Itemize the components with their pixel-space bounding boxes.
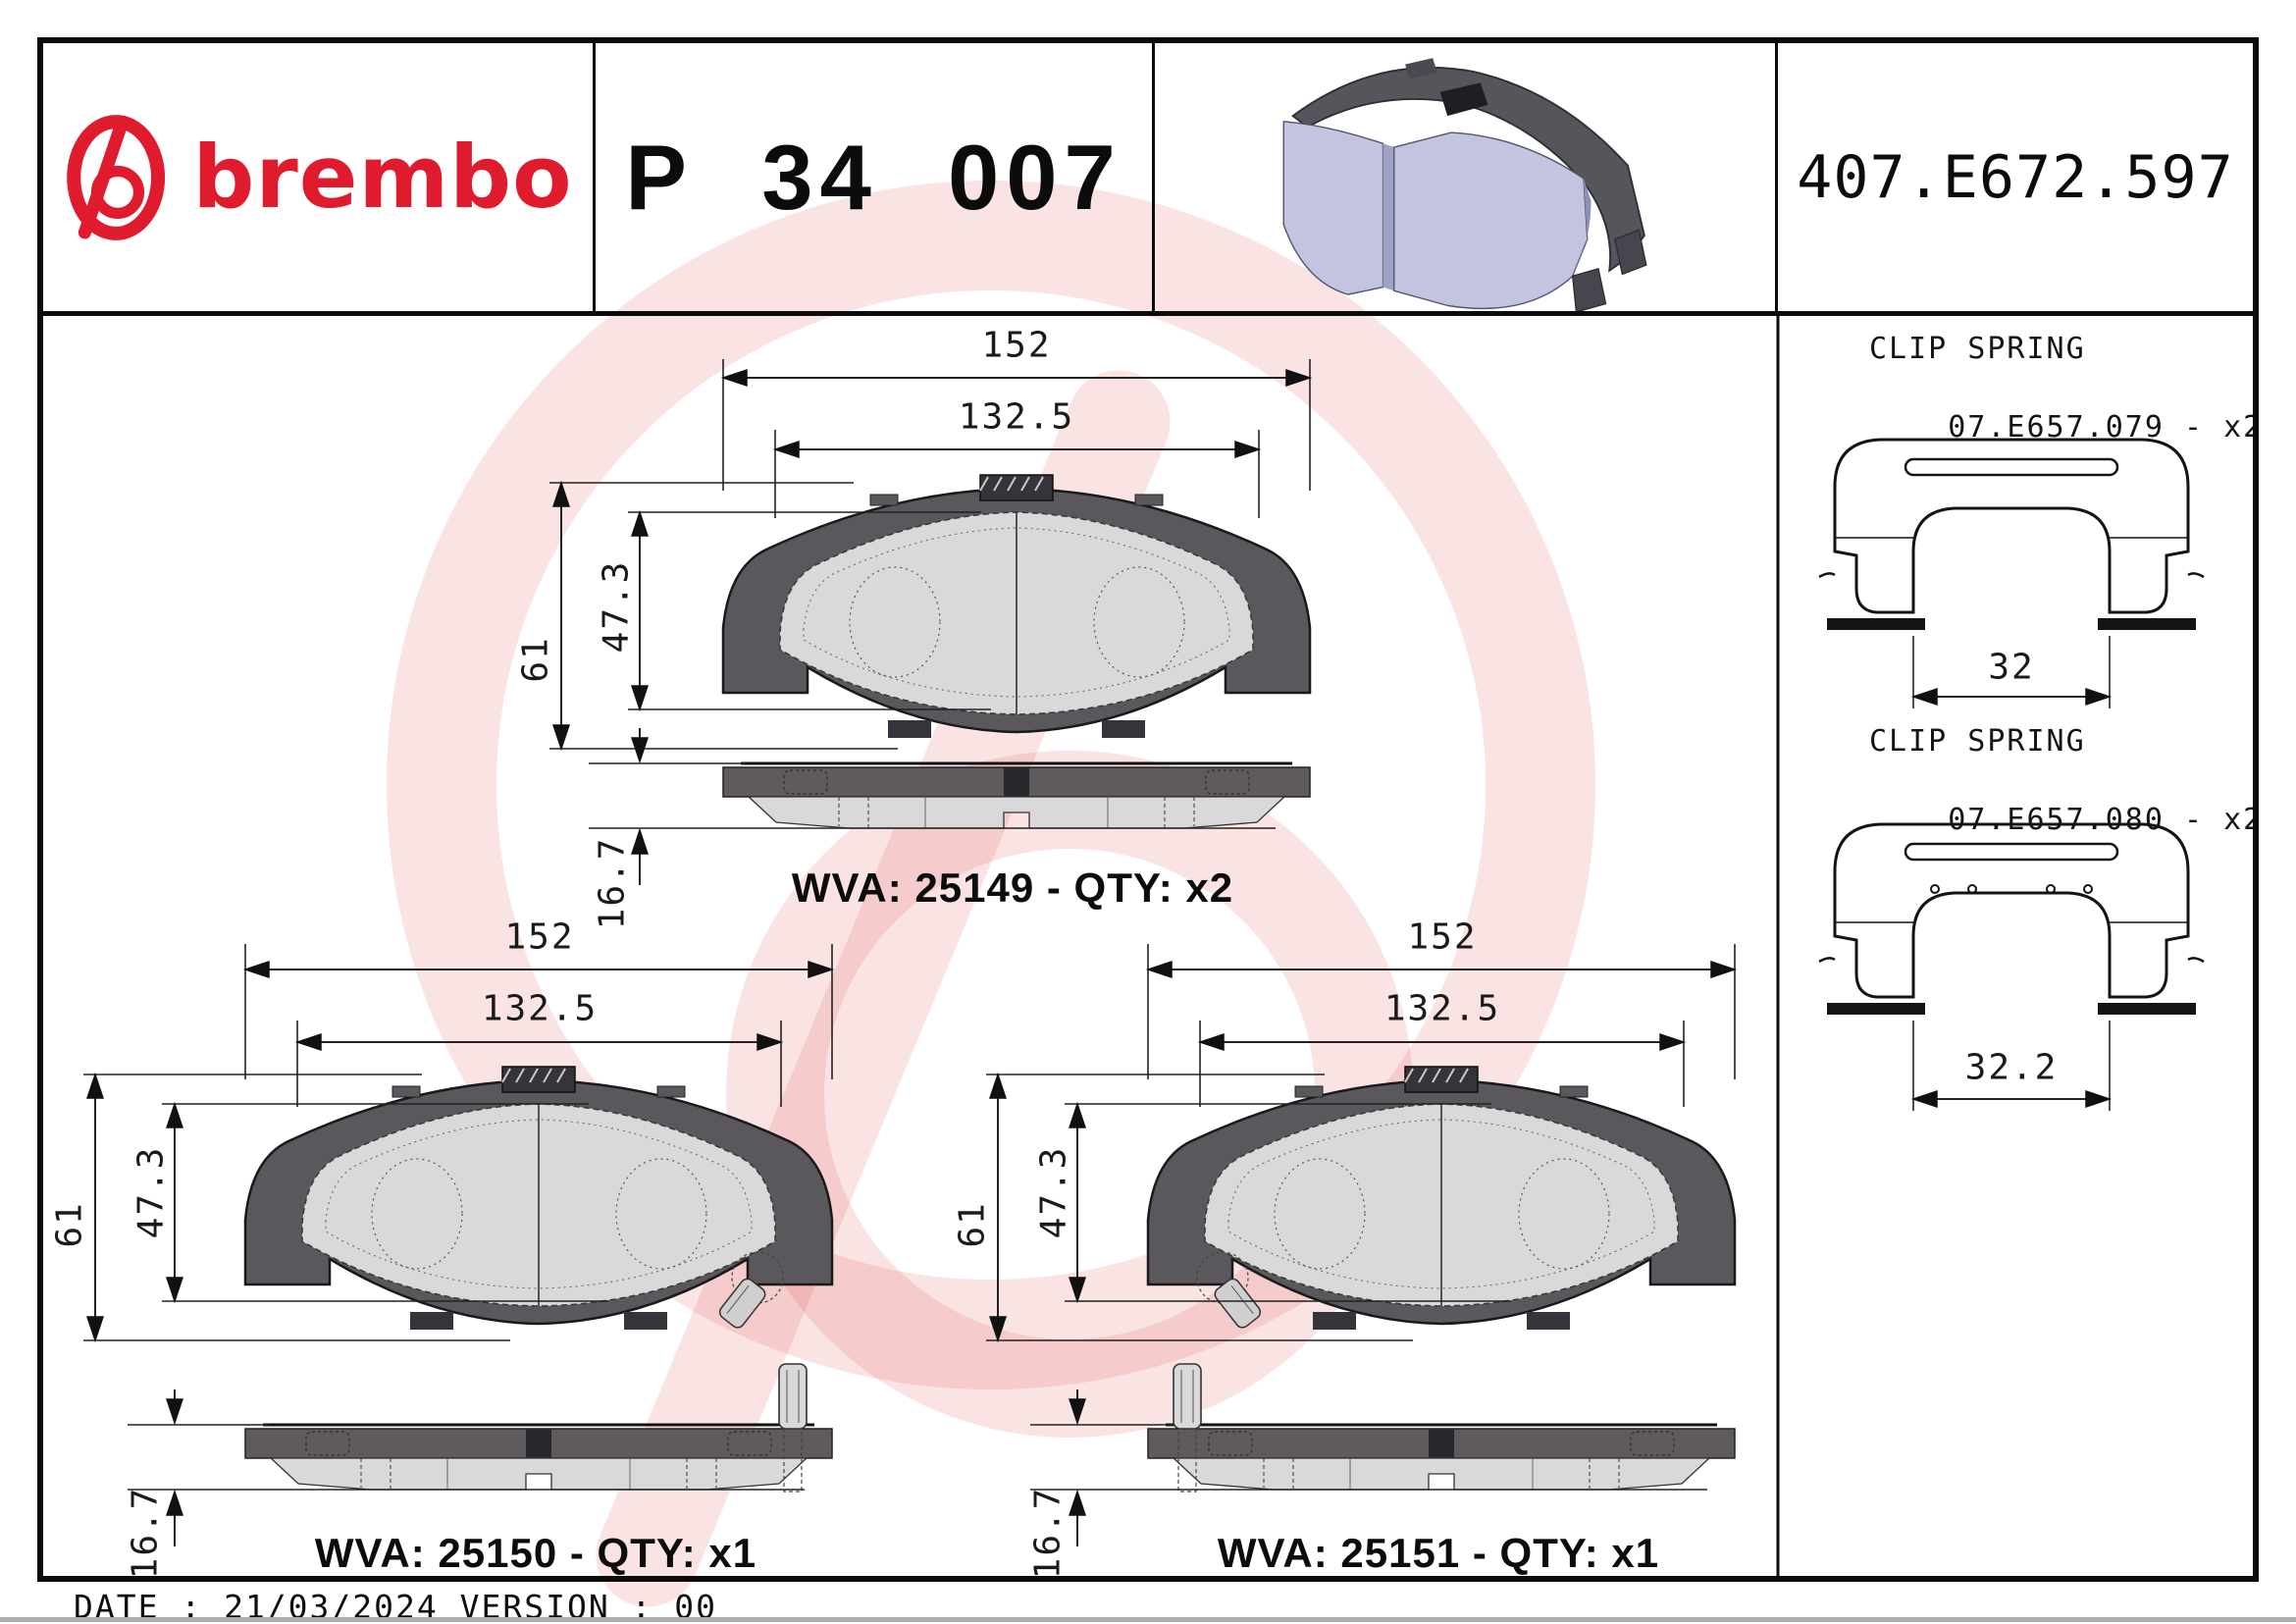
brand-text: brembo: [192, 134, 572, 221]
dim-overall-height-25150: 61: [50, 1201, 90, 1247]
brembo-logo-icon: [63, 106, 173, 249]
wva-label-25151: WVA: 25151 - QTY: x1: [1218, 1530, 1659, 1577]
dim-overall-width-25149: 152: [981, 326, 1051, 366]
dim-overall-height-25151: 61: [953, 1201, 993, 1247]
technical-drawing: [37, 316, 2259, 1582]
page-bottom-strip: [0, 1617, 2296, 1622]
reference-number: 407.E672.597: [1797, 143, 2233, 212]
title-block: brembo P 34 007 407.E672.597: [43, 43, 2253, 316]
datasheet-page: brembo P 34 007 407.E672.597: [0, 0, 2296, 1624]
wva-label-25149: WVA: 25149 - QTY: x2: [792, 864, 1233, 912]
side-view-25151: [1148, 1425, 1735, 1490]
dim-overall-width-25151: 152: [1407, 917, 1477, 958]
brand-cell: brembo: [43, 43, 596, 311]
dim-overall-height-25149: 61: [516, 636, 556, 682]
part-number-cell: P 34 007: [596, 43, 1155, 311]
part-number: P 34 007: [625, 125, 1122, 231]
side-view-25149: [723, 763, 1310, 828]
reference-cell: 407.E672.597: [1778, 43, 2253, 311]
dim-pad-width-25150: 132.5: [482, 989, 598, 1029]
dim-pad-height-25150: 47.3: [131, 1146, 172, 1239]
dim-pad-height-25149: 47.3: [597, 560, 637, 654]
dim-pad-height-25151: 47.3: [1034, 1146, 1074, 1239]
wva-label-25150: WVA: 25150 - QTY: x1: [315, 1530, 757, 1577]
clip-spring-079-title: CLIP SPRING 07.E657.079 - x2: [1869, 330, 2263, 447]
pad-3d-cell: [1155, 43, 1778, 311]
side-view-25150: [245, 1425, 832, 1490]
clip-spring-080-width: 32.2: [1965, 1048, 2059, 1088]
dim-overall-width-25150: 152: [504, 917, 574, 958]
brake-pad-3d-image: [1254, 44, 1676, 311]
clip-spring-079-name: CLIP SPRING: [1869, 332, 2086, 366]
dim-thickness-25149: 16.7: [593, 837, 633, 930]
dim-thickness-25151: 16.7: [1028, 1487, 1069, 1580]
clip-spring-080-name: CLIP SPRING: [1869, 724, 2086, 759]
dim-pad-width-25149: 132.5: [959, 397, 1074, 438]
clip-spring-079-code: 07.E657.079 - x2: [1948, 410, 2263, 445]
dim-thickness-25150: 16.7: [126, 1487, 166, 1580]
clip-spring-080-code: 07.E657.080 - x2: [1948, 803, 2263, 837]
clip-spring-080-title: CLIP SPRING 07.E657.080 - x2: [1869, 722, 2263, 840]
dim-pad-width-25151: 132.5: [1384, 989, 1500, 1029]
clip-spring-079-width: 32: [1988, 648, 2034, 688]
front-view-25149: [723, 475, 1310, 738]
